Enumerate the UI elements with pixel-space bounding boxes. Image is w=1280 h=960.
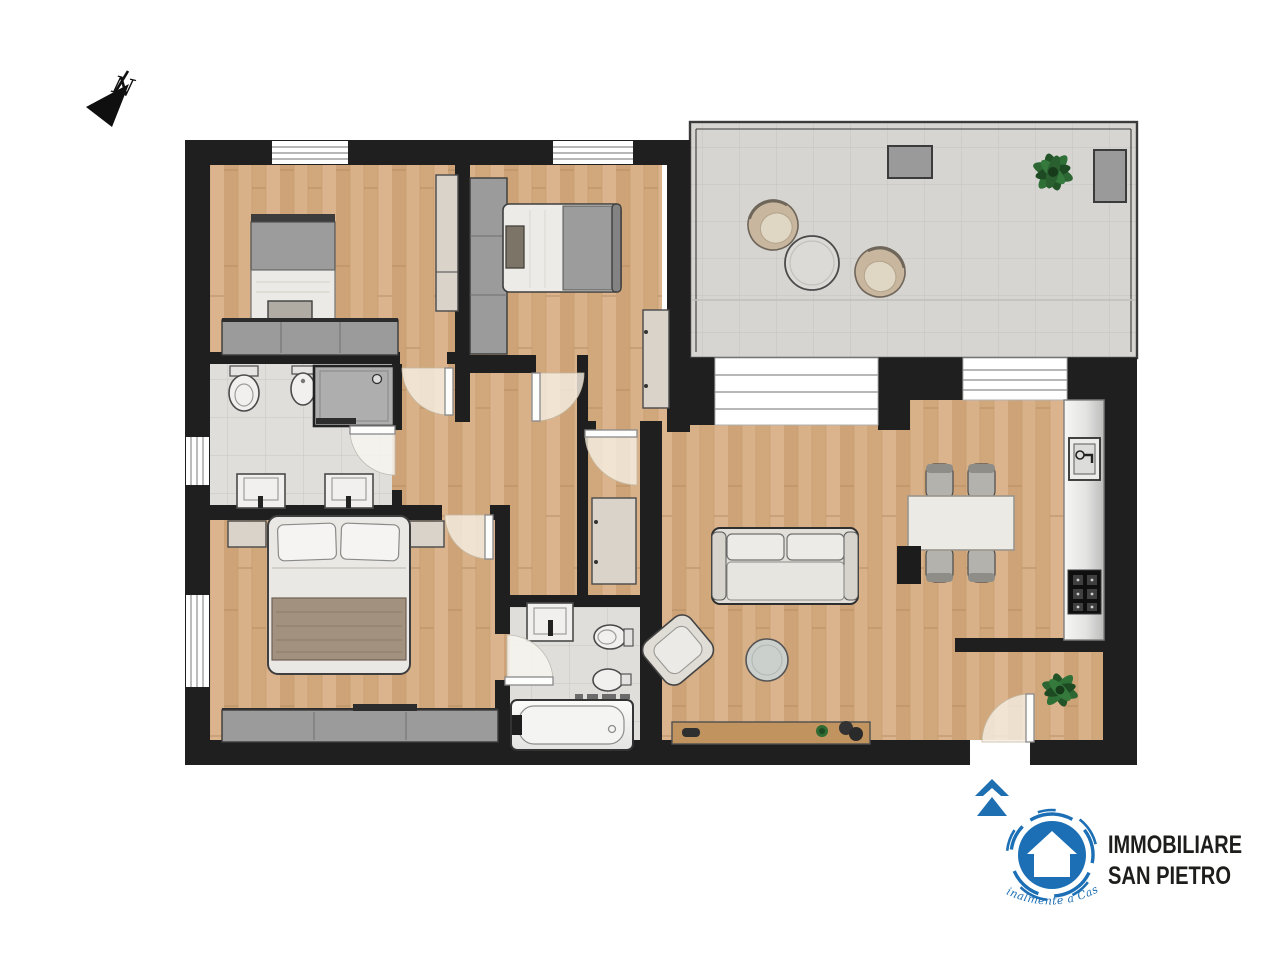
- closet-cabinet-icon: [592, 498, 636, 584]
- terrace-storage-box: [1094, 150, 1126, 202]
- dresser-icon: [222, 318, 398, 355]
- north-compass: N: [86, 70, 138, 127]
- page: N: [0, 0, 1280, 960]
- window: [186, 437, 209, 485]
- bathtub-icon: [511, 700, 633, 750]
- sink-icon: [325, 474, 373, 508]
- double-bed-icon: [268, 516, 410, 674]
- dining-chair-icon: [968, 464, 995, 500]
- kitchen-sink-icon: [1069, 438, 1100, 480]
- window: [272, 141, 348, 164]
- floor-plan: N: [0, 0, 1280, 960]
- brand-name-line2: SAN PIETRO: [1108, 862, 1231, 890]
- dining-chair-icon: [968, 546, 995, 582]
- wardrobe-icon: [436, 175, 458, 311]
- entrance-arrow-icon: [975, 779, 1009, 816]
- terrace-storage-box: [888, 146, 932, 178]
- double-bed-icon: [503, 204, 621, 292]
- north-label: N: [109, 70, 138, 103]
- dining-table-icon: [908, 496, 1014, 550]
- kitchen-counter: [1064, 400, 1104, 640]
- tv-console-icon: [897, 546, 921, 584]
- window: [186, 595, 209, 687]
- wardrobe-icon: [470, 178, 507, 354]
- nightstand-icon: [228, 521, 266, 547]
- cooktop-icon: [1068, 570, 1101, 614]
- shower-icon: [314, 366, 394, 426]
- toilet-icon: [229, 366, 259, 411]
- tall-cabinet-icon: [643, 310, 669, 408]
- sink-icon: [527, 603, 573, 641]
- dining-chair-icon: [926, 546, 953, 582]
- wardrobe-icon: [222, 704, 498, 742]
- side-table-icon: [785, 236, 839, 290]
- sofa-icon: [712, 528, 858, 604]
- nightstand-icon: [406, 521, 444, 547]
- brand-name-line1: IMMOBILIARE: [1108, 831, 1242, 859]
- ottoman-icon: [746, 639, 788, 681]
- single-bed-icon: [251, 214, 335, 322]
- entrance-doorway: [970, 740, 1030, 765]
- window: [553, 141, 633, 164]
- bidet-icon: [291, 366, 315, 405]
- terrace: [690, 122, 1137, 358]
- toilet-icon: [594, 625, 633, 649]
- sliding-door-to-terrace: [715, 358, 878, 425]
- sink-icon: [237, 474, 285, 508]
- console-table-icon: [672, 721, 870, 744]
- window: [963, 358, 1067, 400]
- dining-chair-icon: [926, 464, 953, 500]
